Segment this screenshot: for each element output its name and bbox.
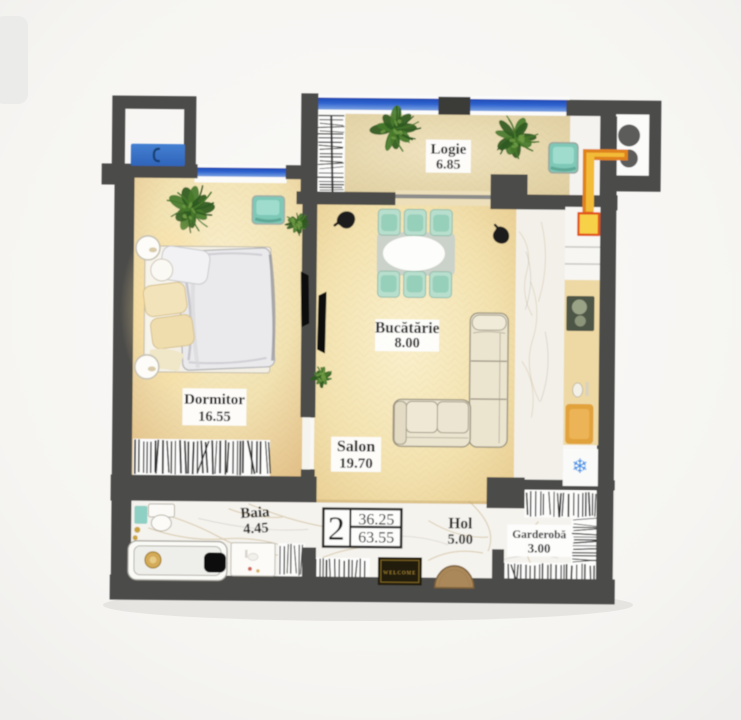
svg-text:Salon: Salon: [337, 438, 376, 455]
svg-text:19.70: 19.70: [339, 456, 373, 472]
svg-text:16.55: 16.55: [198, 409, 231, 425]
svg-text:Dormitor: Dormitor: [184, 392, 245, 409]
svg-text:5.00: 5.00: [447, 532, 473, 548]
svg-text:8.00: 8.00: [394, 335, 420, 351]
svg-text:WELCOME: WELCOME: [383, 571, 416, 576]
svg-text:36.25: 36.25: [358, 511, 394, 528]
svg-text:2: 2: [328, 511, 345, 548]
svg-text:Bucătărie: Bucătărie: [375, 319, 440, 337]
svg-text:Garderobă: Garderobă: [512, 529, 566, 542]
svg-text:Logie: Logie: [430, 141, 466, 157]
svg-text:4.45: 4.45: [243, 520, 269, 537]
svg-text:Hol: Hol: [448, 515, 473, 532]
svg-text:63.55: 63.55: [358, 529, 394, 546]
svg-text:❄: ❄: [571, 456, 588, 478]
svg-text:3.00: 3.00: [528, 541, 551, 556]
svg-text:6.85: 6.85: [436, 158, 461, 173]
